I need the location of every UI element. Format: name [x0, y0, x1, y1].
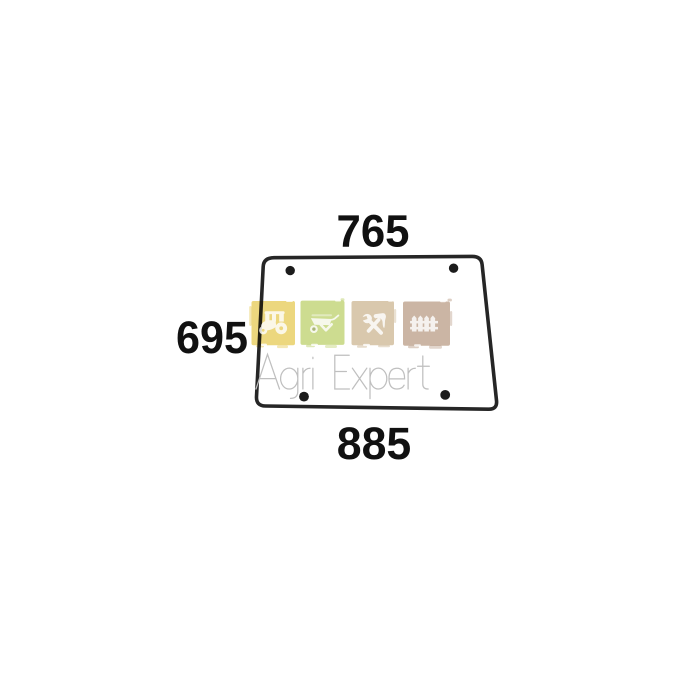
- svg-text:885: 885: [337, 418, 412, 469]
- svg-text:695: 695: [176, 312, 248, 363]
- svg-text:765: 765: [337, 206, 410, 257]
